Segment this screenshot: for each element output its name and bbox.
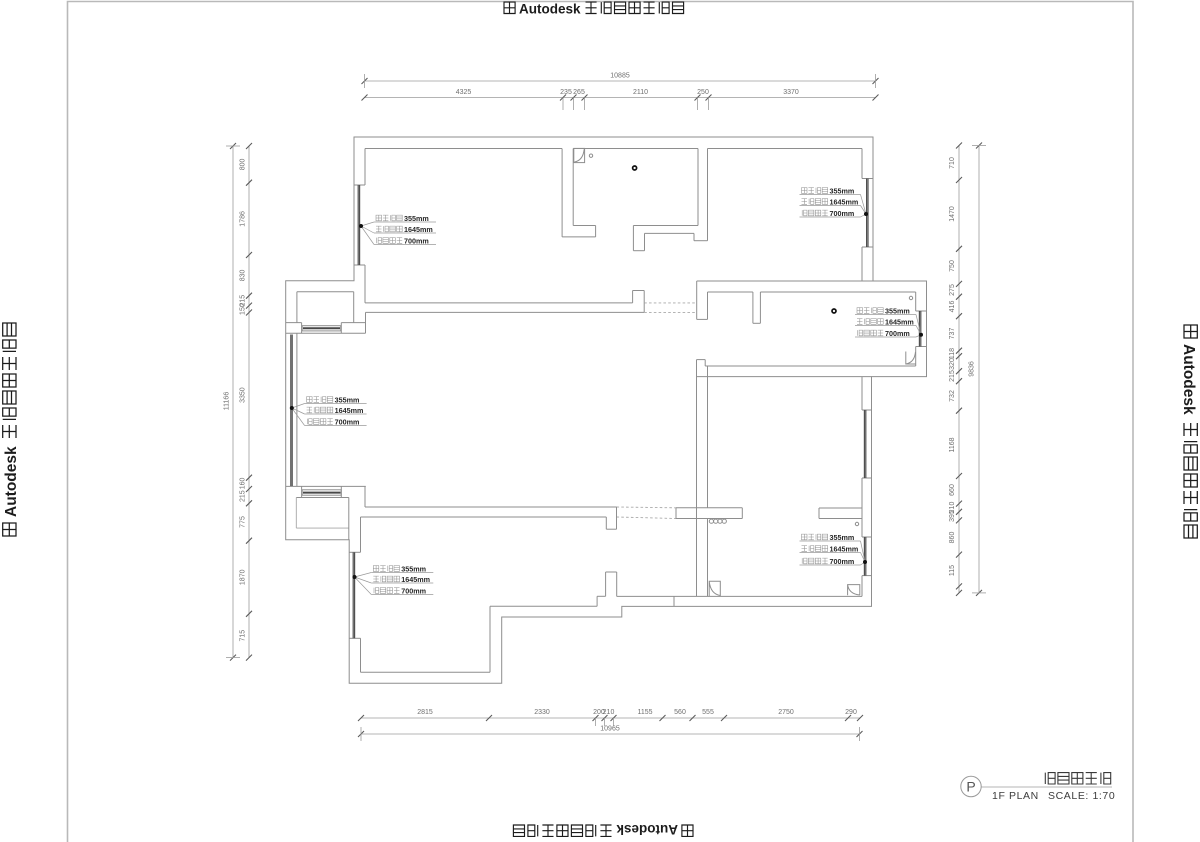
svg-text:355mm: 355mm xyxy=(830,186,855,195)
svg-text:SCALE: 1:70: SCALE: 1:70 xyxy=(1048,790,1115,802)
svg-text:1470: 1470 xyxy=(949,206,956,222)
svg-text:Autodesk: Autodesk xyxy=(519,2,581,17)
svg-text:160: 160 xyxy=(240,477,247,489)
svg-text:10885: 10885 xyxy=(610,73,630,80)
svg-text:416: 416 xyxy=(949,301,956,313)
svg-text:1870: 1870 xyxy=(240,569,247,585)
svg-text:715: 715 xyxy=(240,630,247,642)
svg-text:3350: 3350 xyxy=(240,387,247,403)
svg-text:275: 275 xyxy=(949,284,956,296)
svg-text:9836: 9836 xyxy=(969,361,976,377)
svg-text:800: 800 xyxy=(240,158,247,170)
svg-text:560: 560 xyxy=(674,709,686,716)
svg-text:1645mm: 1645mm xyxy=(404,225,433,234)
svg-text:11166: 11166 xyxy=(224,392,231,411)
svg-text:1645mm: 1645mm xyxy=(885,317,914,326)
svg-text:700mm: 700mm xyxy=(335,417,360,426)
svg-text:1786: 1786 xyxy=(240,211,247,227)
svg-text:355mm: 355mm xyxy=(404,214,429,223)
svg-text:235: 235 xyxy=(560,89,572,96)
svg-text:250: 250 xyxy=(697,89,709,96)
svg-text:4325: 4325 xyxy=(456,89,472,96)
svg-text:Autodesk: Autodesk xyxy=(616,822,678,837)
svg-text:355mm: 355mm xyxy=(335,395,360,404)
svg-text:1645mm: 1645mm xyxy=(401,575,430,584)
svg-text:1645mm: 1645mm xyxy=(335,406,364,415)
svg-text:1645mm: 1645mm xyxy=(830,197,859,206)
svg-text:2750: 2750 xyxy=(778,709,794,716)
svg-text:700mm: 700mm xyxy=(830,209,855,218)
svg-text:660: 660 xyxy=(949,484,956,496)
svg-text:2330: 2330 xyxy=(534,709,550,716)
svg-text:555: 555 xyxy=(702,709,714,716)
svg-text:2110: 2110 xyxy=(633,89,648,96)
svg-text:210: 210 xyxy=(603,709,615,716)
svg-text:215: 215 xyxy=(949,370,956,382)
svg-text:118: 118 xyxy=(949,348,956,359)
svg-text:290: 290 xyxy=(845,709,857,716)
svg-text:Autodesk: Autodesk xyxy=(3,446,20,517)
svg-text:355mm: 355mm xyxy=(401,564,426,573)
svg-text:1F PLAN: 1F PLAN xyxy=(992,790,1039,802)
svg-text:710: 710 xyxy=(949,157,956,169)
svg-text:1645mm: 1645mm xyxy=(830,544,859,553)
svg-text:355mm: 355mm xyxy=(830,533,855,542)
svg-text:1155: 1155 xyxy=(637,709,652,716)
svg-text:P: P xyxy=(966,779,975,795)
svg-text:320: 320 xyxy=(949,358,956,370)
svg-text:830: 830 xyxy=(240,269,247,281)
svg-text:732: 732 xyxy=(949,390,956,402)
svg-text:750: 750 xyxy=(949,260,956,272)
svg-text:215: 215 xyxy=(240,490,247,502)
svg-text:700mm: 700mm xyxy=(885,329,910,338)
svg-text:3370: 3370 xyxy=(783,89,799,96)
svg-text:700mm: 700mm xyxy=(404,236,429,245)
svg-text:115: 115 xyxy=(949,565,956,576)
svg-text:355mm: 355mm xyxy=(885,306,910,315)
svg-text:700mm: 700mm xyxy=(830,557,855,566)
svg-text:Autodesk: Autodesk xyxy=(1180,344,1197,415)
svg-text:10965: 10965 xyxy=(600,726,620,733)
svg-text:1168: 1168 xyxy=(949,437,956,452)
svg-text:860: 860 xyxy=(949,532,956,544)
svg-text:150: 150 xyxy=(240,303,247,315)
svg-text:737: 737 xyxy=(949,328,956,340)
svg-text:265: 265 xyxy=(573,89,585,96)
svg-text:700mm: 700mm xyxy=(401,586,426,595)
svg-text:395: 395 xyxy=(949,510,956,522)
svg-text:775: 775 xyxy=(240,516,247,528)
svg-text:2815: 2815 xyxy=(417,709,433,716)
